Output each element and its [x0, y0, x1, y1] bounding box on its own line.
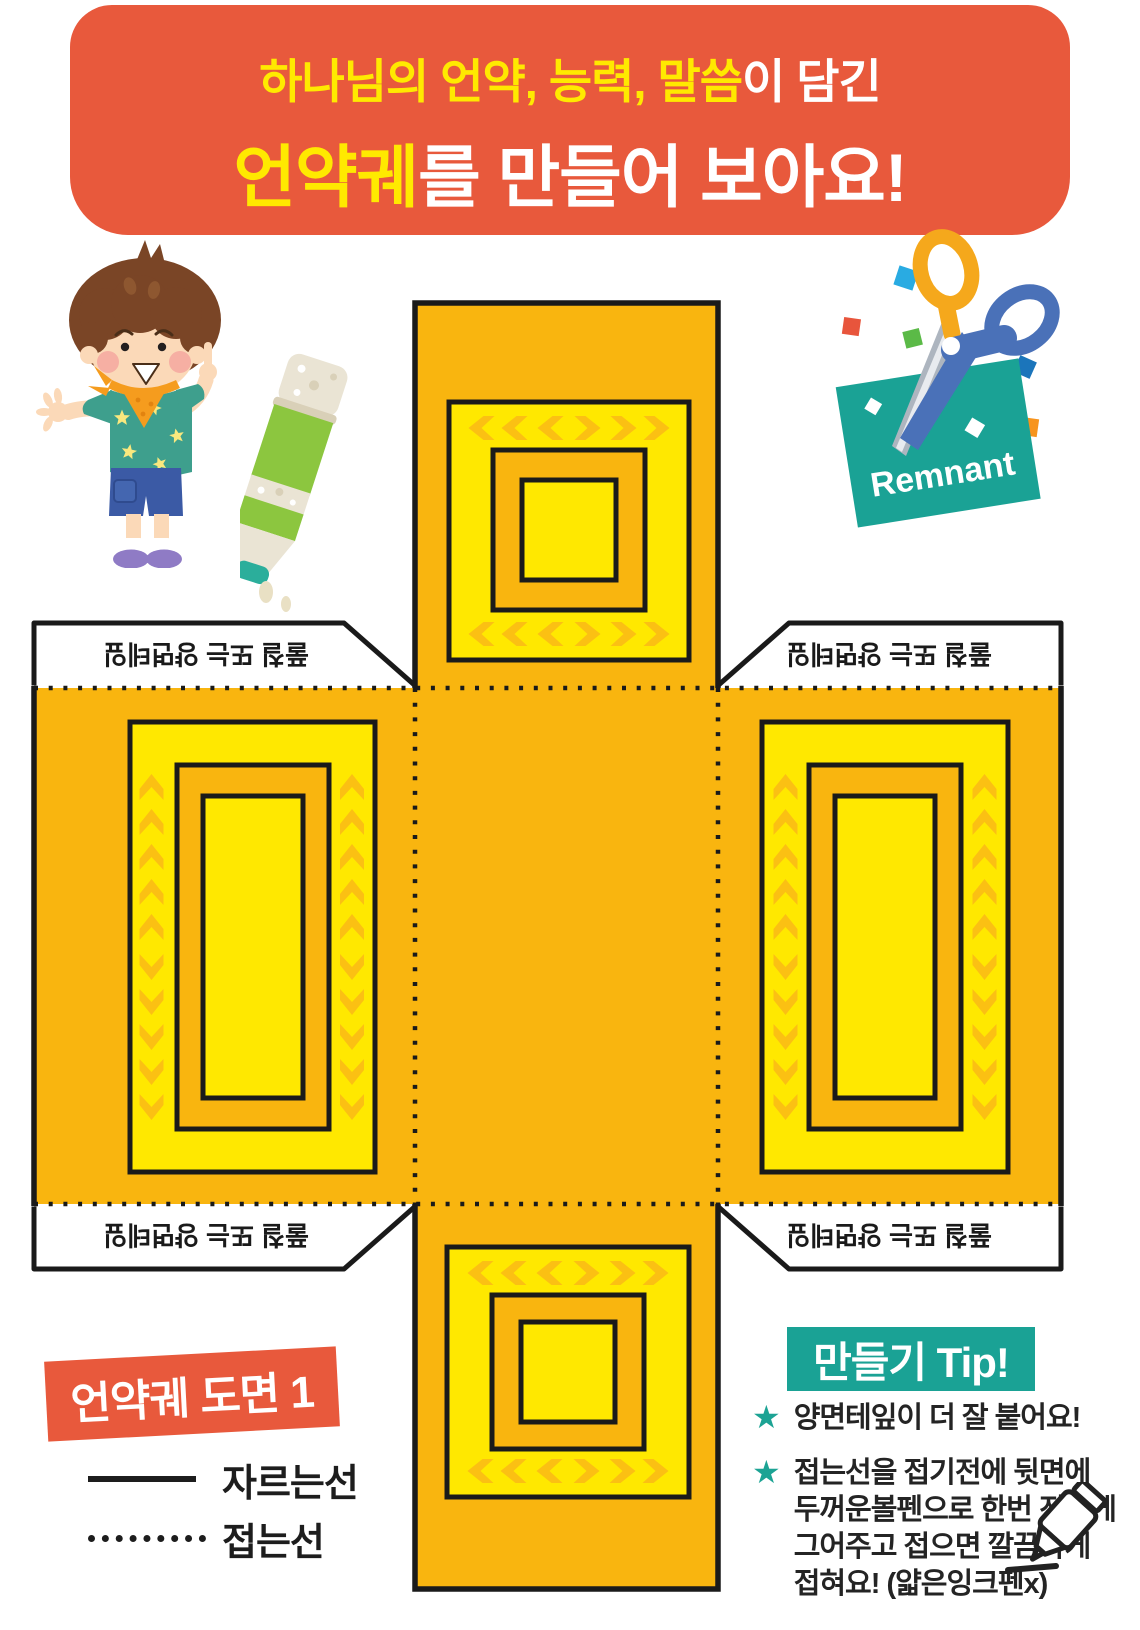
left-panel [130, 722, 375, 1172]
glue-tab-label: 풀칠 또는 양면테잎 [103, 1220, 309, 1250]
cut-line-sample [88, 1476, 196, 1482]
glue-tab-label: 풀칠 또는 양면테잎 [786, 1220, 992, 1250]
glue-tab-label: 풀칠 또는 양면테잎 [786, 639, 992, 669]
tips-heading: 만들기 Tip! [787, 1327, 1035, 1391]
glue-stick-illustration [240, 352, 390, 614]
tip-text: 양면테잎이 더 잘 붙어요! [794, 1400, 1081, 1437]
tip-item: ★ 양면테잎이 더 잘 붙어요! [752, 1400, 1124, 1437]
scissors-illustration: Remnant [788, 210, 1088, 542]
legend: 자르는선 접는선 [88, 1456, 358, 1561]
page: 하나님의 언약, 능력, 말씀이 담긴 언약궤를 만들어 보아요! [0, 0, 1140, 1630]
right-panel [762, 722, 1008, 1172]
legend-row-fold: 접는선 [88, 1515, 358, 1561]
star-bullet-icon: ★ [752, 1455, 781, 1489]
star-bullet-icon: ★ [752, 1400, 781, 1434]
top-flap [449, 402, 689, 660]
pen-icon [1000, 1482, 1110, 1582]
diagram-label: 언약궤 도면 1 [44, 1346, 340, 1441]
fold-line-sample [88, 1535, 206, 1542]
cut-line-label: 자르는선 [222, 1452, 358, 1507]
glue-tab-label: 풀칠 또는 양면테잎 [103, 639, 309, 669]
boy-illustration [30, 238, 265, 568]
fold-line-label: 접는선 [222, 1511, 324, 1566]
legend-row-cut: 자르는선 [88, 1456, 358, 1502]
